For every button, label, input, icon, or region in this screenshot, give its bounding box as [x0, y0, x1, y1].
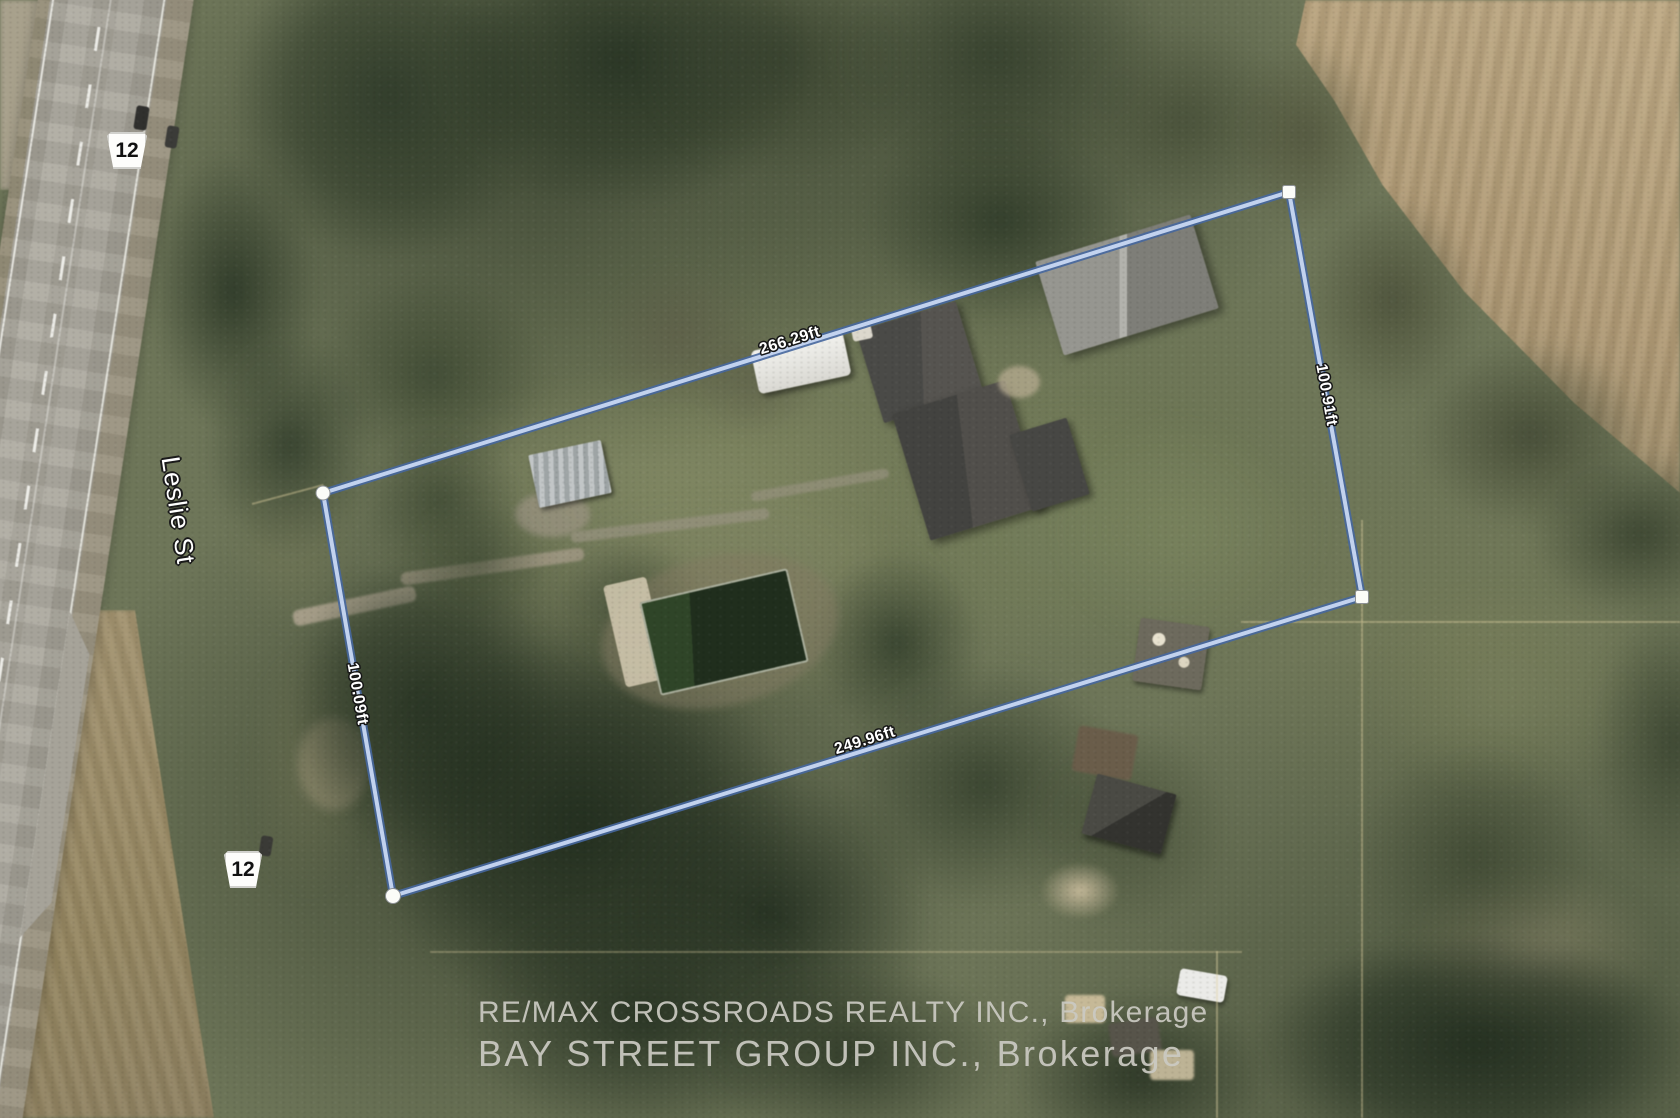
highway-12-shield: 12 [107, 132, 147, 169]
parcel-boundary-casing [323, 192, 1362, 896]
parcel-vertex-south [386, 889, 401, 904]
highway-shield-number: 12 [231, 858, 254, 882]
parcel-overlay: 266.29ft 100.91ft 249.96ft 100.09ft [0, 0, 1680, 1118]
watermark-line2: BAY STREET GROUP INC., Brokerage [478, 1033, 1184, 1075]
parcel-vertex-east [1356, 591, 1369, 604]
aerial-listing-photo: 266.29ft 100.91ft 249.96ft 100.09ft 12 1… [0, 0, 1680, 1118]
highway-12-shield: 12 [224, 851, 262, 888]
watermark-line1: RE/MAX CROSSROADS REALTY INC., Brokerage [478, 996, 1208, 1030]
dimension-label-left: 100.09ft [343, 662, 371, 727]
parcel-boundary [323, 192, 1362, 896]
dimension-label-right: 100.91ft [1312, 363, 1340, 428]
dimension-label-top: 266.29ft [757, 323, 822, 358]
highway-shield-number: 12 [115, 139, 138, 163]
parcel-vertex-west [316, 486, 330, 500]
parcel-vertex-north [1283, 186, 1296, 199]
